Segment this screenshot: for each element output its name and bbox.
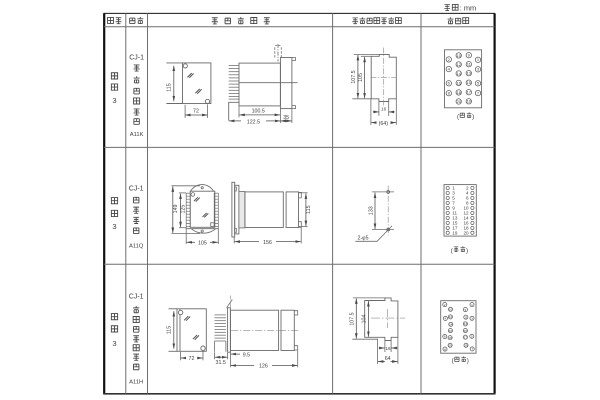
- svg-text:19: 19: [452, 231, 458, 236]
- svg-text:133: 133: [368, 206, 374, 215]
- svg-text:12: 12: [456, 62, 461, 67]
- svg-text:1: 1: [471, 303, 473, 307]
- svg-text:115: 115: [167, 326, 173, 334]
- svg-text:156: 156: [263, 240, 272, 246]
- svg-text:A11Q: A11Q: [129, 243, 144, 249]
- svg-text:115: 115: [306, 205, 312, 213]
- svg-text:35: 35: [283, 115, 289, 121]
- svg-text:16: 16: [385, 346, 391, 351]
- svg-text:14: 14: [449, 323, 453, 327]
- svg-text:13: 13: [467, 71, 472, 76]
- svg-text:): ): [467, 358, 469, 365]
- svg-text:105: 105: [358, 73, 364, 82]
- svg-text:): ): [466, 248, 468, 255]
- svg-text:3: 3: [471, 317, 473, 321]
- svg-text:64: 64: [385, 356, 391, 362]
- svg-text:13: 13: [464, 322, 468, 326]
- svg-text:122.5: 122.5: [247, 119, 260, 125]
- svg-text:15: 15: [464, 329, 468, 333]
- svg-text:20: 20: [448, 344, 452, 348]
- svg-text:16: 16: [381, 106, 387, 111]
- svg-text:12: 12: [449, 315, 453, 319]
- svg-text:17: 17: [467, 90, 472, 95]
- svg-text:3: 3: [112, 339, 116, 348]
- svg-text:20: 20: [456, 99, 461, 104]
- svg-text:A11H: A11H: [129, 380, 143, 386]
- svg-text:(: (: [457, 114, 460, 121]
- svg-text:CJ-1: CJ-1: [129, 186, 144, 193]
- svg-text:10: 10: [456, 53, 461, 58]
- svg-text:(: (: [451, 248, 454, 255]
- svg-text:149: 149: [173, 204, 179, 213]
- svg-text:19: 19: [464, 344, 468, 348]
- svg-text:7: 7: [471, 347, 473, 351]
- svg-text:CJ-1: CJ-1: [129, 55, 144, 62]
- svg-text:125: 125: [180, 205, 186, 214]
- svg-text:11: 11: [464, 315, 467, 319]
- svg-text:4: 4: [445, 317, 447, 321]
- svg-text:A11K: A11K: [130, 132, 144, 138]
- svg-text:16: 16: [456, 80, 461, 85]
- svg-text:2: 2: [444, 303, 446, 307]
- svg-text:3: 3: [112, 96, 116, 105]
- svg-text:19: 19: [467, 99, 472, 104]
- svg-text:72: 72: [189, 356, 195, 362]
- svg-text:9: 9: [465, 308, 467, 312]
- svg-text:17: 17: [464, 335, 468, 339]
- svg-text:72: 72: [193, 108, 199, 114]
- svg-text:: mm: : mm: [460, 3, 476, 12]
- svg-text:31.5: 31.5: [216, 360, 226, 366]
- svg-text:3: 3: [112, 222, 116, 231]
- svg-text:(64): (64): [379, 121, 389, 127]
- svg-text:6: 6: [444, 335, 446, 339]
- svg-text:16: 16: [449, 329, 453, 333]
- svg-text:5: 5: [471, 335, 473, 339]
- svg-text:18: 18: [448, 336, 452, 340]
- svg-text:107.5: 107.5: [351, 70, 357, 83]
- svg-text:14: 14: [456, 71, 461, 76]
- svg-text:8: 8: [444, 347, 446, 351]
- svg-text:CJ-1: CJ-1: [129, 294, 144, 301]
- svg-text:100.5: 100.5: [252, 108, 265, 114]
- svg-text:20: 20: [463, 231, 469, 236]
- svg-text:9.5: 9.5: [243, 352, 250, 358]
- svg-text:): ): [472, 114, 474, 121]
- svg-text:18: 18: [456, 90, 461, 95]
- svg-text:115: 115: [167, 83, 173, 91]
- svg-text:2-φ5: 2-φ5: [357, 236, 368, 242]
- svg-text:107.5: 107.5: [349, 312, 355, 325]
- svg-text:(: (: [452, 358, 455, 365]
- svg-text:10: 10: [449, 308, 453, 312]
- svg-text:105: 105: [198, 241, 207, 247]
- svg-text:126: 126: [259, 364, 268, 370]
- svg-text:104: 104: [362, 315, 368, 324]
- svg-text:15: 15: [467, 80, 472, 85]
